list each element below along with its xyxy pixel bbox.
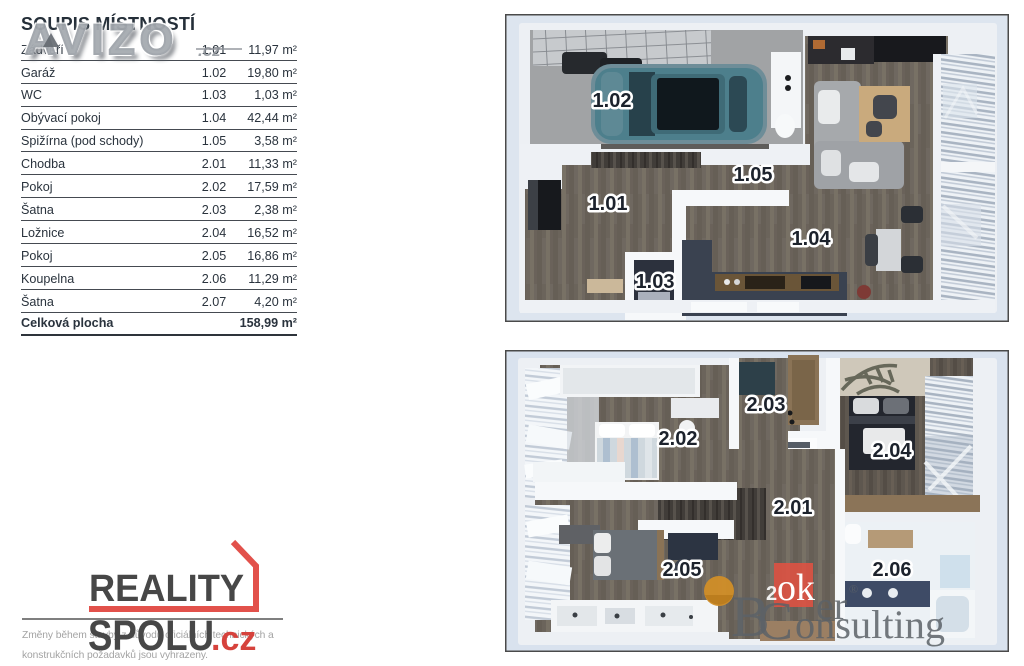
svg-text:2.05: 2.05	[663, 559, 702, 581]
svg-text:1.05: 1.05	[734, 164, 773, 186]
svg-text:SPOLU: SPOLU	[88, 613, 214, 660]
svg-text:2.02: 2.02	[659, 428, 698, 450]
svg-text:2.06: 2.06	[873, 559, 912, 581]
svg-text:2.01: 2.01	[774, 497, 813, 519]
svg-text:1.02: 1.02	[593, 90, 632, 112]
svg-text:®: ®	[849, 582, 858, 596]
svg-text:1.04: 1.04	[792, 228, 832, 250]
svg-text:C: C	[757, 591, 793, 651]
svg-text:onsulting: onsulting	[795, 602, 945, 647]
svg-text:2.04: 2.04	[873, 440, 913, 462]
svg-text:.cz: .cz	[211, 620, 256, 658]
svg-text:REALITY: REALITY	[89, 568, 244, 610]
svg-text:1.03: 1.03	[636, 271, 675, 293]
svg-text:1.01: 1.01	[589, 193, 628, 215]
svg-text:2.03: 2.03	[747, 394, 786, 416]
